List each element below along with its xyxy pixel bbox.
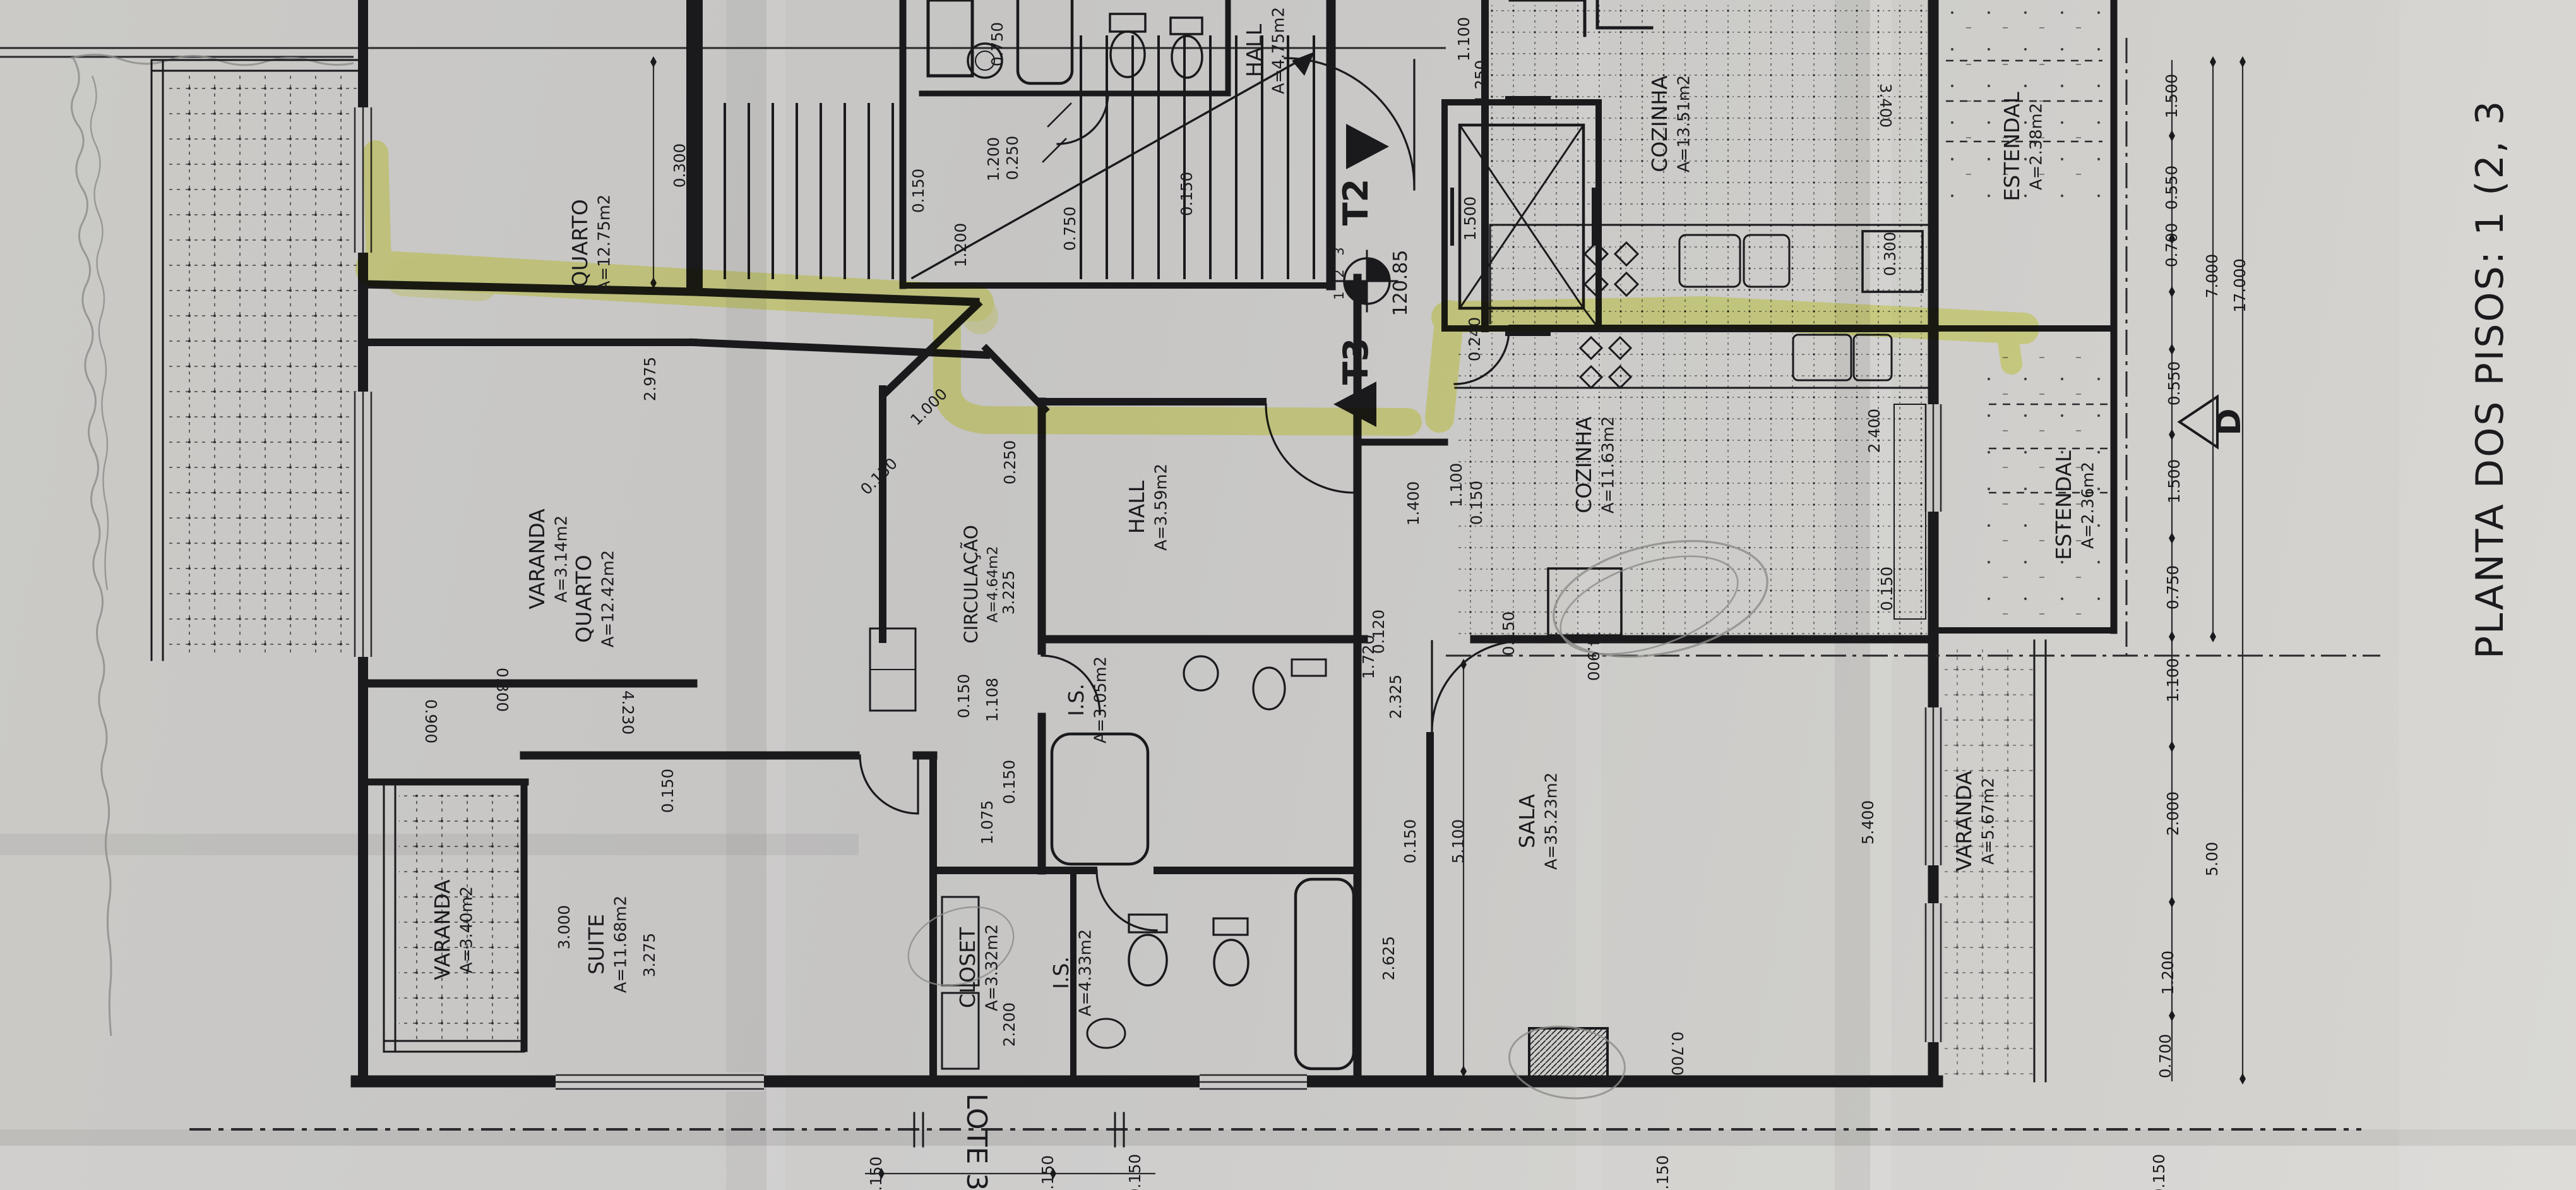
room-area: A=2.38m2 (2027, 103, 2046, 190)
room-area: A=11.63m2 (1599, 416, 1618, 514)
dimension-label: 5.100 (1449, 819, 1467, 863)
dimension-label: 2.325 (1386, 675, 1405, 719)
annotation-label: T3 (1336, 338, 1376, 385)
dimension-label: 0.240 (1465, 317, 1484, 361)
core-wc-fixtures (928, 0, 1202, 83)
room-area: A=12.75m2 (595, 195, 614, 292)
dimension-label: 0.750 (1061, 207, 1079, 251)
room-area: A=4.75m2 (1270, 7, 1289, 94)
dimension-label: 0.550 (2165, 361, 2183, 406)
dimension-label: 0.150 (1467, 481, 1486, 525)
room-name: CIRCULAÇÃO (960, 525, 982, 644)
annotation-label: LOTE 31 (960, 1093, 993, 1190)
dimension-label: 2.400 (1865, 409, 1883, 453)
annotation-label: T2 (1336, 179, 1376, 225)
room-area: A=3.32m2 (983, 924, 1002, 1011)
annotation-label: D (2210, 408, 2248, 435)
cozinha-1163-tiles (1455, 334, 1929, 635)
dimension-label: 0.250 (1001, 440, 1019, 484)
dimension-label: 1.400 (1404, 481, 1422, 526)
dimension-label: 1.075 (978, 800, 996, 844)
fireplace (1529, 1028, 1607, 1085)
dimension-label: 1.500 (1461, 196, 1479, 241)
dimension-label: 1.500 (2162, 74, 2181, 118)
room-area: A=12.42m2 (599, 550, 618, 647)
dimension-label: 0.700 (2162, 223, 2181, 267)
room-area: A=3.40m2 (458, 886, 477, 973)
room-area: A=13.51m2 (1675, 75, 1694, 172)
dimension-label: 2 (1332, 269, 1347, 277)
dimension-label: 0.700 (2156, 1034, 2174, 1078)
dimension-label: 17.000 (2231, 258, 2249, 313)
dimension-label: 1.100 (1447, 463, 1465, 507)
room-area: A=3.59m2 (1152, 464, 1171, 551)
dimension-label: 1.250 (1472, 60, 1490, 104)
room-name: ESTENDAL (2051, 450, 2076, 560)
washbasin (1087, 1019, 1125, 1048)
dimension-label: 7.000 (2203, 254, 2221, 298)
furniture (870, 628, 1607, 1085)
dimension-label: 1.100 (2164, 658, 2182, 702)
floor-plan-drawing: VARANDAA=3.14m2QUARTOA=12.75m2QUARTOA=12… (0, 0, 2576, 1190)
dimension-label: 0.150 (1878, 567, 1896, 611)
room-name: ESTENDAL (2000, 92, 2024, 201)
toilet (1129, 935, 1167, 985)
dimension-label: 4.230 (619, 690, 637, 735)
room-name: COZINHA (1571, 416, 1596, 514)
dimension-label: 1.200 (2159, 951, 2177, 995)
room-name: I.S. (1049, 956, 1073, 989)
dimension-label: 0.750 (988, 22, 1006, 66)
dimension-label: 5.400 (1859, 800, 1877, 844)
room-name: COZINHA (1647, 75, 1672, 172)
dimension-label: 0.120 (1369, 610, 1388, 654)
dimension-label: 120.85 (1390, 250, 1412, 316)
room-name: SALA (1515, 794, 1539, 848)
room-name: HALL (1124, 480, 1149, 534)
dimension-label: 0.150 (1401, 819, 1419, 863)
dimension-label: 0.150 (955, 674, 973, 718)
dimension-label: 0.550 (2162, 165, 2181, 210)
cut-fixture (928, 0, 972, 76)
toilet (1111, 32, 1145, 77)
varanda-314-hatch (165, 73, 361, 657)
dimension-label: 0.150 (909, 169, 927, 213)
bathtub (1052, 734, 1148, 864)
dimension-label: 1.500 (2165, 459, 2183, 503)
dimension-label: 4.900 (1584, 637, 1602, 681)
window (352, 392, 374, 657)
room-name: VARANDA (1952, 771, 1976, 872)
dimension-label: 1.200 (984, 137, 1003, 181)
bidet (1172, 36, 1202, 78)
dimension-label: 0.150 (1500, 611, 1518, 656)
dimension-label: 0.150 (659, 769, 677, 813)
dimension-label: 3.275 (640, 933, 659, 977)
dimension-label: 3.225 (999, 570, 1018, 615)
dimension-label: 1.200 (951, 223, 970, 267)
room-name: VARANDA (525, 508, 549, 610)
stair-direction-arrow (1292, 52, 1315, 76)
dimension-label: 0.300 (671, 143, 689, 188)
dimension-label: 5.00 (2203, 842, 2221, 877)
dimension-label: 0.150 (857, 454, 901, 498)
room-name: QUARTO (568, 199, 592, 287)
window (1923, 707, 1943, 865)
dimension-label: 1 (1332, 291, 1347, 299)
dimension-label: 0.150 (1000, 760, 1018, 804)
toilet (1253, 668, 1285, 709)
dimension-label: 0.700 (1668, 1031, 1686, 1076)
dimension-label: 3.000 (555, 905, 573, 949)
room-name: QUARTO (571, 555, 596, 642)
room-area: A=35.23m2 (1542, 772, 1561, 870)
level-marker-icon (1337, 251, 1397, 311)
dimension-label: 0.150 (1178, 172, 1196, 216)
dimension-label: 0.300 (493, 668, 511, 712)
is-433-fixtures (1087, 879, 1354, 1069)
room-area: A=4.33m2 (1076, 929, 1095, 1016)
room-area: A=3.14m2 (552, 515, 571, 603)
washbasin (1184, 656, 1218, 690)
estendal-238-floor (1937, 5, 2111, 204)
dimension-label: 0.300 (1881, 232, 1899, 276)
window (1923, 903, 1943, 1042)
dimension-label: 2.200 (1000, 1002, 1018, 1047)
dimension-label: 1.108 (983, 678, 1001, 722)
room-name: I.S. (1064, 683, 1088, 716)
dimension-label: 0.250 (1003, 136, 1022, 180)
room-area: A=2.36m2 (2079, 462, 2098, 549)
dimension-label: 0.150 (1126, 1154, 1144, 1190)
window (556, 1073, 764, 1091)
dimension-label: 0.750 (2164, 565, 2182, 610)
t2-arrow-icon (1346, 124, 1389, 169)
room-area: A=5.67m2 (1979, 778, 1998, 865)
window (1200, 1073, 1307, 1091)
bidet (1214, 940, 1248, 985)
dimension-label: 0.150 (2150, 1154, 2168, 1190)
room-area: A=3.05m2 (1092, 656, 1111, 743)
room-area: A=4.64m2 (984, 546, 1001, 622)
room-name: HALL (1242, 23, 1267, 77)
annotation-label: PLANTA DOS PISOS: 1 (2, 3 (2468, 99, 2512, 659)
dimension-label: 2.975 (641, 357, 659, 401)
room-name: VARANDA (430, 879, 455, 980)
dimension-label: 2.625 (1380, 936, 1398, 980)
dimension-label: 3 (1332, 247, 1347, 255)
dimension-label: 0.150 (867, 1157, 885, 1190)
dimension-label: 0.150 (1039, 1155, 1057, 1190)
dimension-label: 2.000 (2164, 791, 2182, 836)
room-name: CLOSET (955, 927, 980, 1008)
dimension-label: 1.100 (1455, 17, 1473, 61)
bathtub (1018, 0, 1072, 83)
room-name: SUITE (584, 914, 609, 975)
room-area: A=11.68m2 (612, 896, 631, 993)
dimension-label: 0.150 (1654, 1155, 1672, 1190)
bathtub (1296, 879, 1354, 1069)
photographed-floor-plan: { "document": { "title": "PLANTA DOS PIS… (0, 0, 2576, 1190)
dimension-label: 3.400 (1876, 83, 1895, 128)
dimension-label: 0.900 (422, 699, 440, 743)
